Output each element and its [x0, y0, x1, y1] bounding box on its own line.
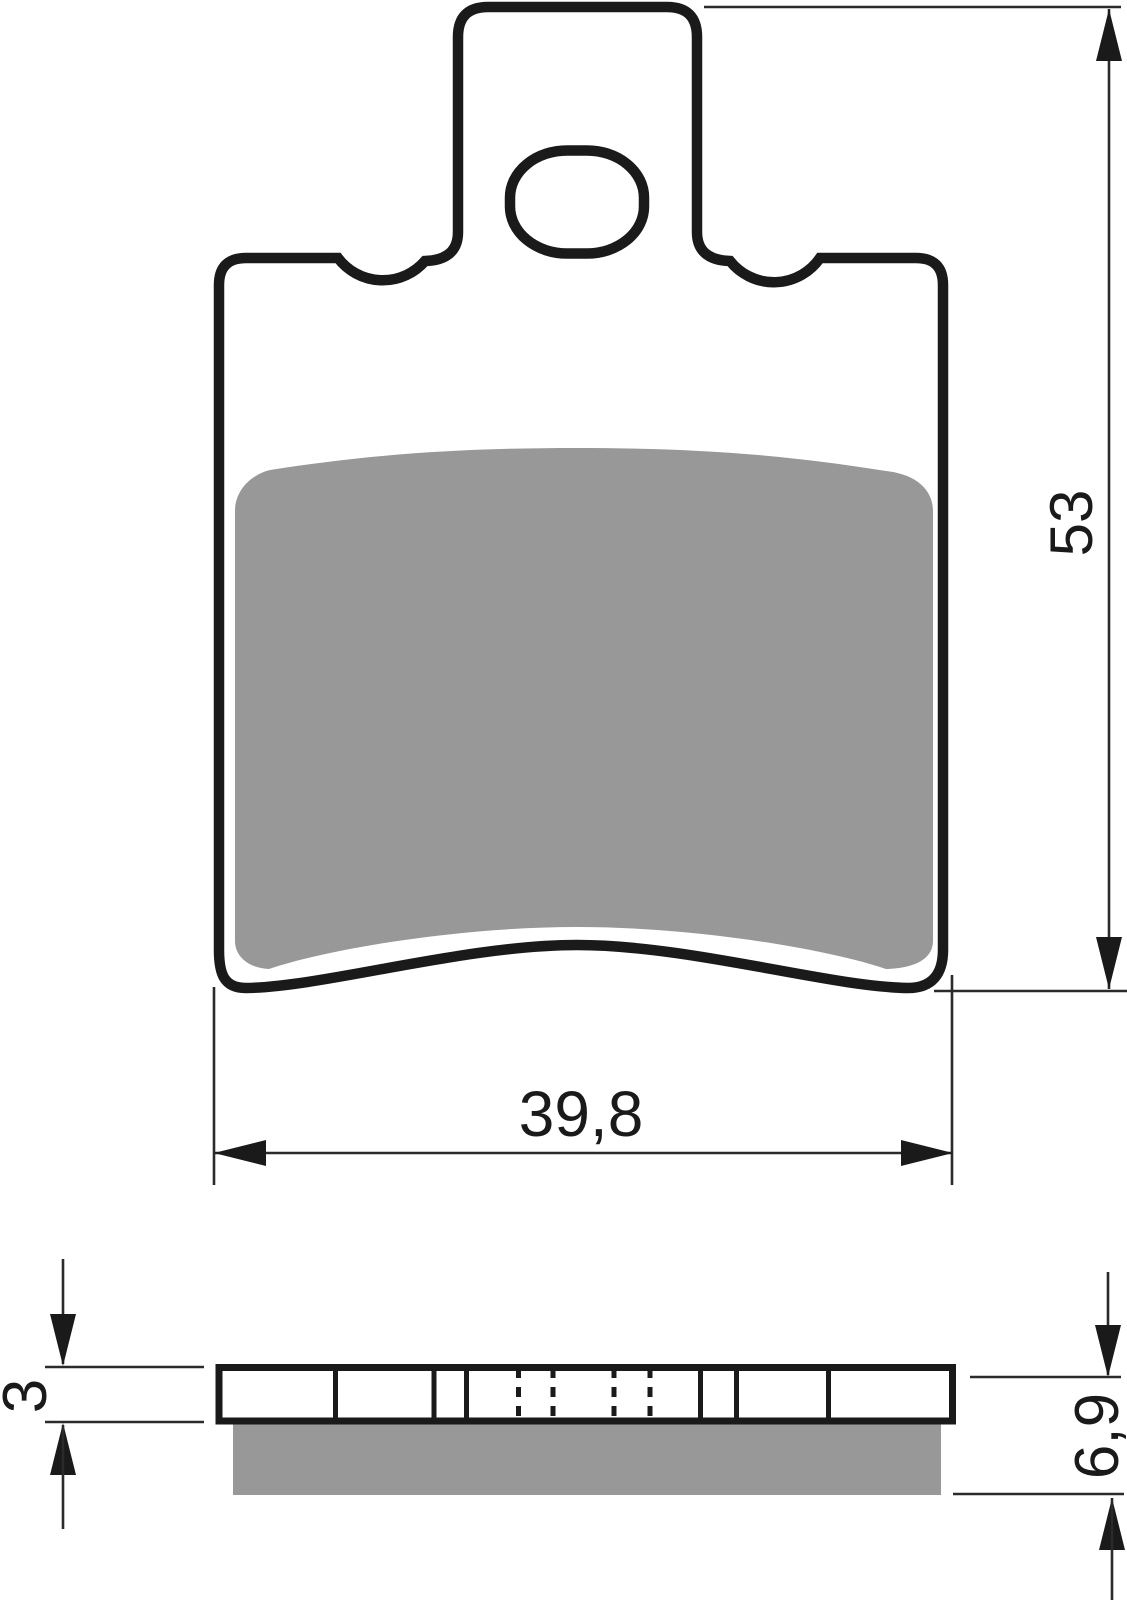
svg-text:6,9: 6,9 — [1063, 1393, 1127, 1479]
svg-text:39,8: 39,8 — [519, 1078, 644, 1150]
svg-text:3: 3 — [0, 1379, 60, 1413]
svg-text:53: 53 — [1038, 490, 1105, 557]
